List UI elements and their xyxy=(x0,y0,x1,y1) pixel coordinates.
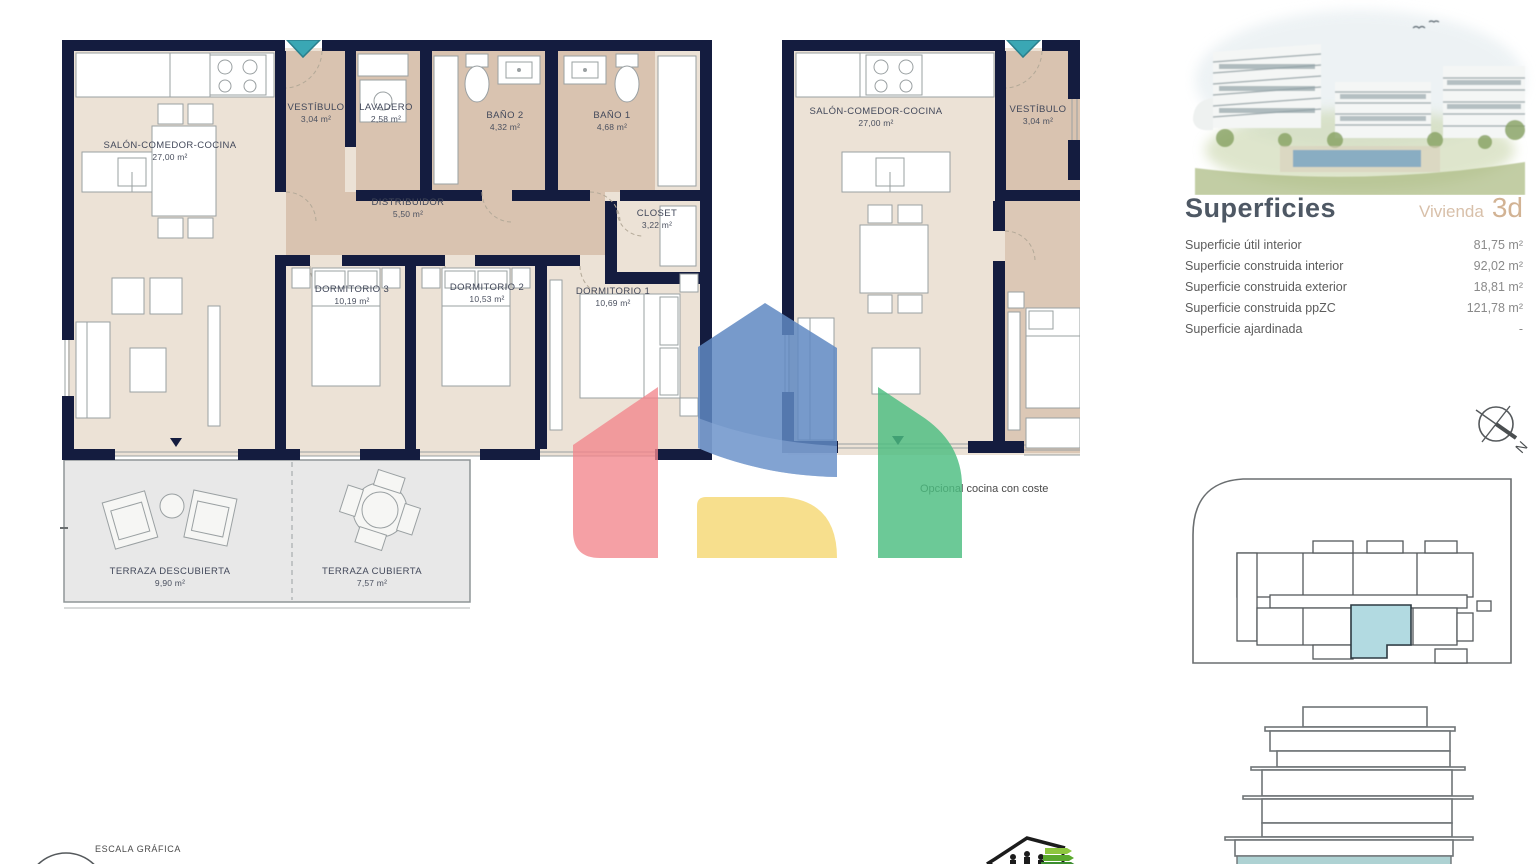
table-row: Superficie construida exterior 18,81 m² xyxy=(1185,280,1523,294)
table-row: Superficie útil interior 81,75 m² xyxy=(1185,238,1523,252)
row-label: Superficie construida interior xyxy=(1185,259,1343,273)
table-row: Superficie construida interior 92,02 m² xyxy=(1185,259,1523,273)
row-label: Superficie útil interior xyxy=(1185,238,1302,252)
label-distribuidor: DISTRIBUIDOR xyxy=(372,197,445,208)
label-distribuidor-area: 5,50 m² xyxy=(393,209,423,219)
label-dormitorio1-area: 10,69 m² xyxy=(595,298,630,308)
floorplan-brochure-page: { "plans": { "left": { "rooms": { "salon… xyxy=(0,0,1536,864)
table-row: Superficie construida ppZC 121,78 m² xyxy=(1185,301,1523,315)
energy-bars-icon xyxy=(1041,848,1076,864)
label-vestibulo-area: 3,04 m² xyxy=(1023,116,1053,126)
superficies-table: Superficie útil interior 81,75 m² Superf… xyxy=(1185,238,1523,336)
label-dormitorio3: DORMITORIO 3 xyxy=(315,284,389,295)
row-label: Superficie construida exterior xyxy=(1185,280,1347,294)
floorplan-main: SALÓN-COMEDOR-COCINA 27,00 m² VESTÍBULO … xyxy=(60,40,740,610)
optional-kitchen-note: Opcional cocina con coste xyxy=(920,483,1048,495)
vivienda-label: Vivienda xyxy=(1419,202,1484,222)
row-value: 18,81 m² xyxy=(1474,280,1523,294)
label-lavadero-area: 2,58 m² xyxy=(371,114,401,124)
room-distribuidor xyxy=(286,192,605,255)
label-vestibulo: VESTÍBULO xyxy=(1010,104,1067,115)
bedroom-furniture xyxy=(1008,292,1080,448)
label-vestibulo: VESTÍBULO xyxy=(288,102,345,113)
label-dormitorio3-area: 10,19 m² xyxy=(334,296,369,306)
row-label: Superficie construida ppZC xyxy=(1185,301,1336,315)
label-dormitorio2: DORMITORIO 2 xyxy=(450,282,524,293)
label-lavadero: LAVADERO xyxy=(359,102,413,113)
label-bano2: BAÑO 2 xyxy=(486,110,523,121)
label-terraza-cubierta-area: 7,57 m² xyxy=(357,578,387,588)
building-middle xyxy=(1335,82,1431,138)
vivienda-value: 3d xyxy=(1492,192,1523,224)
label-terraza-descubierta-area: 9,90 m² xyxy=(155,578,185,588)
label-bano2-area: 4,32 m² xyxy=(490,122,520,132)
building-elevation xyxy=(1205,695,1535,864)
label-dormitorio1: DORMITORIO 1 xyxy=(576,286,650,297)
label-vestibulo-area: 3,04 m² xyxy=(301,114,331,124)
row-value: - xyxy=(1519,322,1523,336)
label-terraza-cubierta: TERRAZA CUBIERTA xyxy=(322,566,422,577)
building-render-image xyxy=(1185,0,1536,195)
floorplan-optional-kitchen: SALÓN-COMEDOR-COCINA 27,00 m² VESTÍBULO … xyxy=(780,40,1080,520)
superficies-title: Superficies xyxy=(1185,193,1336,224)
label-dormitorio2-area: 10,53 m² xyxy=(469,294,504,304)
eco-house-logo-icon xyxy=(983,830,1083,864)
label-salon-area: 27,00 m² xyxy=(858,118,893,128)
north-label: N xyxy=(1512,438,1531,456)
site-key-plan xyxy=(1185,465,1515,675)
label-salon: SALÓN-COMEDOR-COCINA xyxy=(103,140,236,151)
table-row: Superficie ajardinada - xyxy=(1185,322,1523,336)
scale-compass-partial xyxy=(8,845,128,864)
row-label: Superficie ajardinada xyxy=(1185,322,1302,336)
label-closet-area: 3,22 m² xyxy=(642,220,672,230)
pool xyxy=(1293,150,1421,167)
superficies-panel: Superficies Vivienda 3d Superficie útil … xyxy=(1185,192,1523,336)
highlighted-floor xyxy=(1237,856,1451,864)
row-value: 92,02 m² xyxy=(1474,259,1523,273)
label-terraza-descubierta: TERRAZA DESCUBIERTA xyxy=(110,566,231,577)
compass-icon: N xyxy=(1468,392,1534,464)
label-bano1: BAÑO 1 xyxy=(593,110,630,121)
label-closet: CLOSET xyxy=(637,208,677,219)
label-salon-area: 27,00 m² xyxy=(152,152,187,162)
row-value: 121,78 m² xyxy=(1467,301,1523,315)
label-bano1-area: 4,68 m² xyxy=(597,122,627,132)
row-value: 81,75 m² xyxy=(1474,238,1523,252)
label-salon: SALÓN-COMEDOR-COCINA xyxy=(809,106,942,117)
